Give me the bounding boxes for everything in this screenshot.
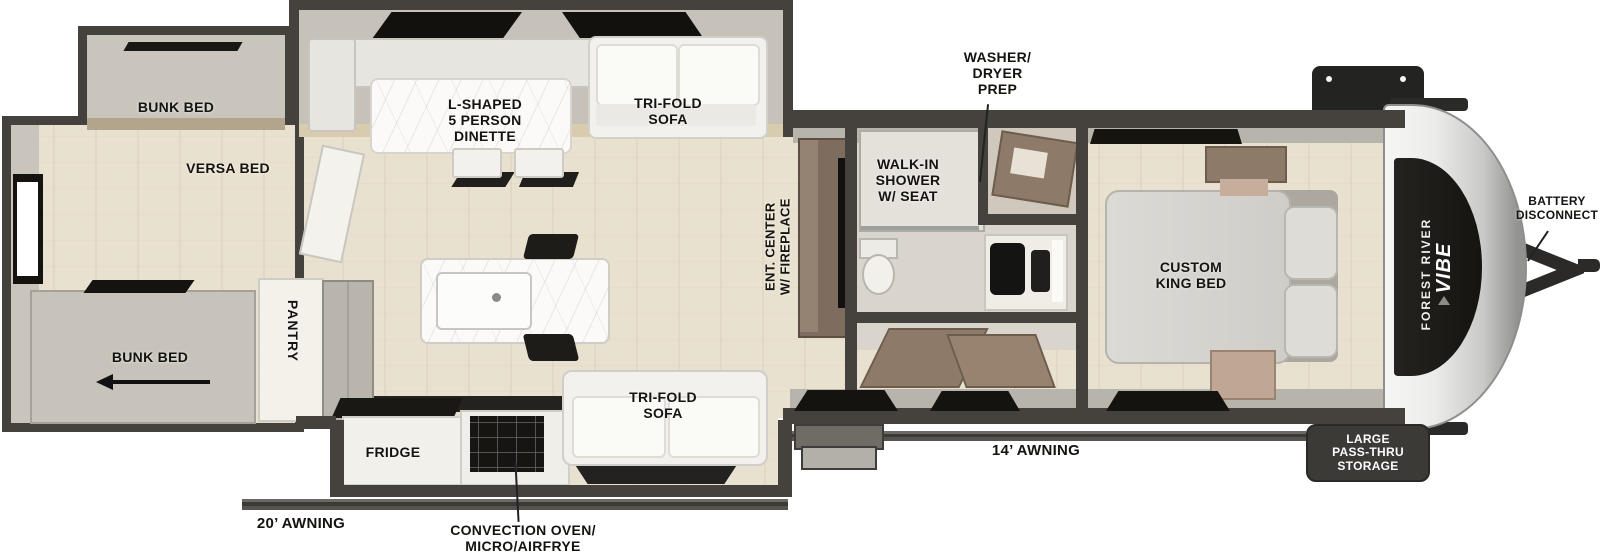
- hitch-coupler: [1578, 259, 1600, 272]
- washer-dryer-prep-label: WASHER/ DRYER PREP: [950, 50, 1045, 97]
- tri-fold-sofa-bottom-label: TRI-FOLD SOFA: [617, 390, 709, 422]
- vanity-sink-2: [1031, 250, 1050, 292]
- convection-oven-label: CONVECTION OVEN/ MICRO/AIRFRYE: [437, 523, 609, 552]
- wall-bottom-slide-right: [778, 420, 792, 497]
- bed-pillow-1: [1284, 206, 1338, 280]
- bunk-arrow-line: [112, 380, 210, 384]
- wall-top-main: [783, 110, 1405, 128]
- kitchen-faucet: [492, 293, 501, 302]
- brand-vibe-row: VIBE: [1433, 243, 1456, 306]
- dinette-chair-1: [452, 148, 502, 178]
- kitchen-sink: [436, 272, 532, 330]
- wall-living-bath: [845, 118, 857, 410]
- awning-20-label: 20’ AWNING: [244, 516, 358, 533]
- brand-forest-river: FOREST RIVER: [1419, 218, 1433, 331]
- convection-oven-cooktop: [470, 416, 544, 472]
- bedroom-bottom-window: [1106, 391, 1230, 411]
- island-stool-1: [523, 234, 579, 259]
- dinette-label: L-SHAPED 5 PERSON DINETTE: [425, 97, 545, 144]
- awning-rail-20ft: [242, 499, 788, 510]
- pass-thru-storage-badge: LARGE PASS-THRU STORAGE: [1306, 424, 1430, 482]
- wall-bath-bottom: [847, 312, 1076, 323]
- floorplan-stage: FOREST RIVER VIBE LARGE PASS-THRU STORAG…: [0, 0, 1600, 552]
- fridge-top: [332, 398, 463, 418]
- wall-bath-bedroom: [1076, 118, 1088, 410]
- entertainment-center-face: [800, 140, 818, 332]
- slide-window-right: [562, 12, 704, 39]
- vanity-sink: [990, 243, 1025, 295]
- washer-closet-inset: [1010, 148, 1048, 179]
- dinette-chair-2: [514, 148, 564, 178]
- dinette-bench-side: [308, 38, 356, 132]
- bedroom-dresser-top: [1220, 179, 1268, 196]
- entry-door-window: [794, 390, 898, 411]
- bunk-bed-top-label: BUNK BED: [96, 100, 256, 116]
- fridge-label: FRIDGE: [348, 445, 438, 461]
- bedroom-dresser: [1205, 146, 1287, 183]
- shower-door-glass: [861, 226, 979, 230]
- front-box-screw-right: [1400, 76, 1406, 82]
- pantry-label: PANTRY: [284, 277, 300, 385]
- bunk-ladder: [83, 280, 194, 293]
- slide-window-left: [372, 12, 522, 39]
- versa-bed-label: VERSA BED: [148, 161, 308, 177]
- bed-pillow-2: [1284, 284, 1338, 358]
- wall-closet-bottom: [978, 214, 1086, 225]
- battery-disconnect-label: BATTERY DISCONNECT: [1514, 195, 1600, 222]
- island-stool-2: [523, 334, 580, 361]
- bunk-arrow-head: [96, 374, 113, 390]
- bunk-wing-edge: [87, 118, 285, 130]
- custom-king-bed-label: CUSTOM KING BED: [1126, 260, 1256, 292]
- bunk-bed-bottom-label: BUNK BED: [70, 350, 230, 366]
- bed-foot-bench: [1210, 350, 1276, 400]
- vibe-logo-mark-icon: [1438, 296, 1450, 305]
- bunk-wing-vent: [123, 42, 242, 51]
- ent-center-label: ENT. CENTER W/ FIREPLACE: [763, 157, 792, 337]
- hall-door-panel-2: [946, 334, 1056, 388]
- brand-logo: FOREST RIVER VIBE: [1415, 189, 1459, 359]
- bunk-room-window-glass: [17, 182, 38, 276]
- awning-14-label: 14’ AWNING: [975, 443, 1097, 460]
- pass-thru-storage-label: LARGE PASS-THRU STORAGE: [1332, 433, 1404, 474]
- toilet-bowl: [862, 254, 895, 295]
- walk-in-shower-label: WALK-IN SHOWER W/ SEAT: [858, 157, 958, 204]
- bedroom-top-window: [1090, 129, 1242, 144]
- entry-steps-lower: [801, 446, 877, 470]
- brand-vibe: VIBE: [1433, 243, 1456, 294]
- front-box-screw-left: [1326, 76, 1332, 82]
- vanity-counter-strip: [1052, 240, 1063, 302]
- wall-bottom-slide-bottom: [330, 485, 792, 497]
- bottom-window-2: [930, 391, 1020, 411]
- tri-fold-sofa-top-label: TRI-FOLD SOFA: [622, 96, 714, 128]
